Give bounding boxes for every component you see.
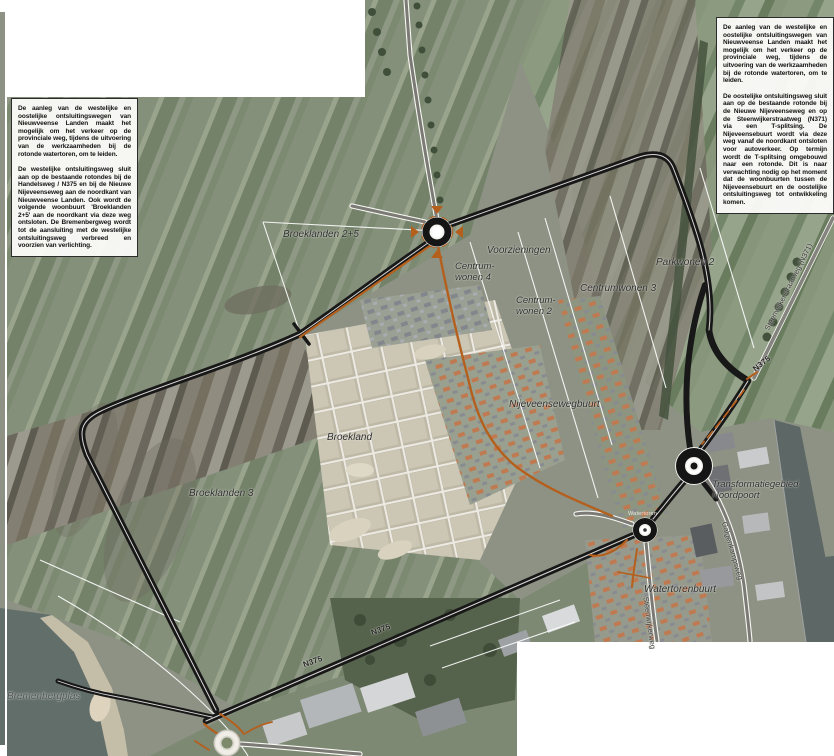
area-label-broekland: Broekland	[327, 432, 372, 444]
annotation-box-east: De aanleg van de westelijke en oostelijk…	[716, 17, 834, 214]
annotation-box-west: De aanleg van de westelijke en oostelijk…	[11, 98, 138, 257]
planning-map-page: De aanleg van de westelijke en oostelijk…	[0, 0, 834, 756]
area-label-centrumwonen-3: Centrumwonen 3	[580, 283, 656, 295]
area-label-transformatiegebied-noordpoort: Transformatiegebied Noordpoort	[712, 479, 798, 501]
annotation-east-paragraph-2: De oostelijke ontsluitingsweg sluit aan …	[723, 93, 827, 207]
annotation-west-paragraph-2: De westelijke ontsluitingsweg sluit aan …	[18, 166, 131, 250]
area-label-voorzieningen: Voorzieningen	[487, 245, 551, 257]
annotation-east-paragraph-1: De aanleg van de westelijke en oostelijk…	[723, 24, 827, 85]
annotation-west-paragraph-1: De aanleg van de westelijke en oostelijk…	[18, 105, 131, 158]
roundabout-watertoren	[633, 518, 658, 543]
area-label-centrumwonen-4: Centrum- wonen 4	[455, 261, 495, 283]
area-label-parkwonen-2: Parkwonen 2	[656, 257, 714, 269]
roundabout-noordpoort	[675, 447, 713, 485]
poi-label-watertoren: Watertoren	[628, 508, 657, 520]
area-label-centrumwonen-2: Centrum- wonen 2	[516, 295, 556, 317]
area-label-watertorenbuurt: Watertorenbuurt	[644, 584, 716, 596]
roundabout-handelsweg	[214, 730, 240, 756]
area-label-broeklanden-3: Broeklanden 3	[189, 488, 254, 500]
area-label-nijeveensewegbuurt: Nijeveensewegbuurt	[509, 399, 600, 411]
area-label-bremenbergplas: Bremenbergplas	[7, 691, 80, 703]
area-label-broeklanden-2-5: Broeklanden 2+5	[283, 229, 359, 241]
